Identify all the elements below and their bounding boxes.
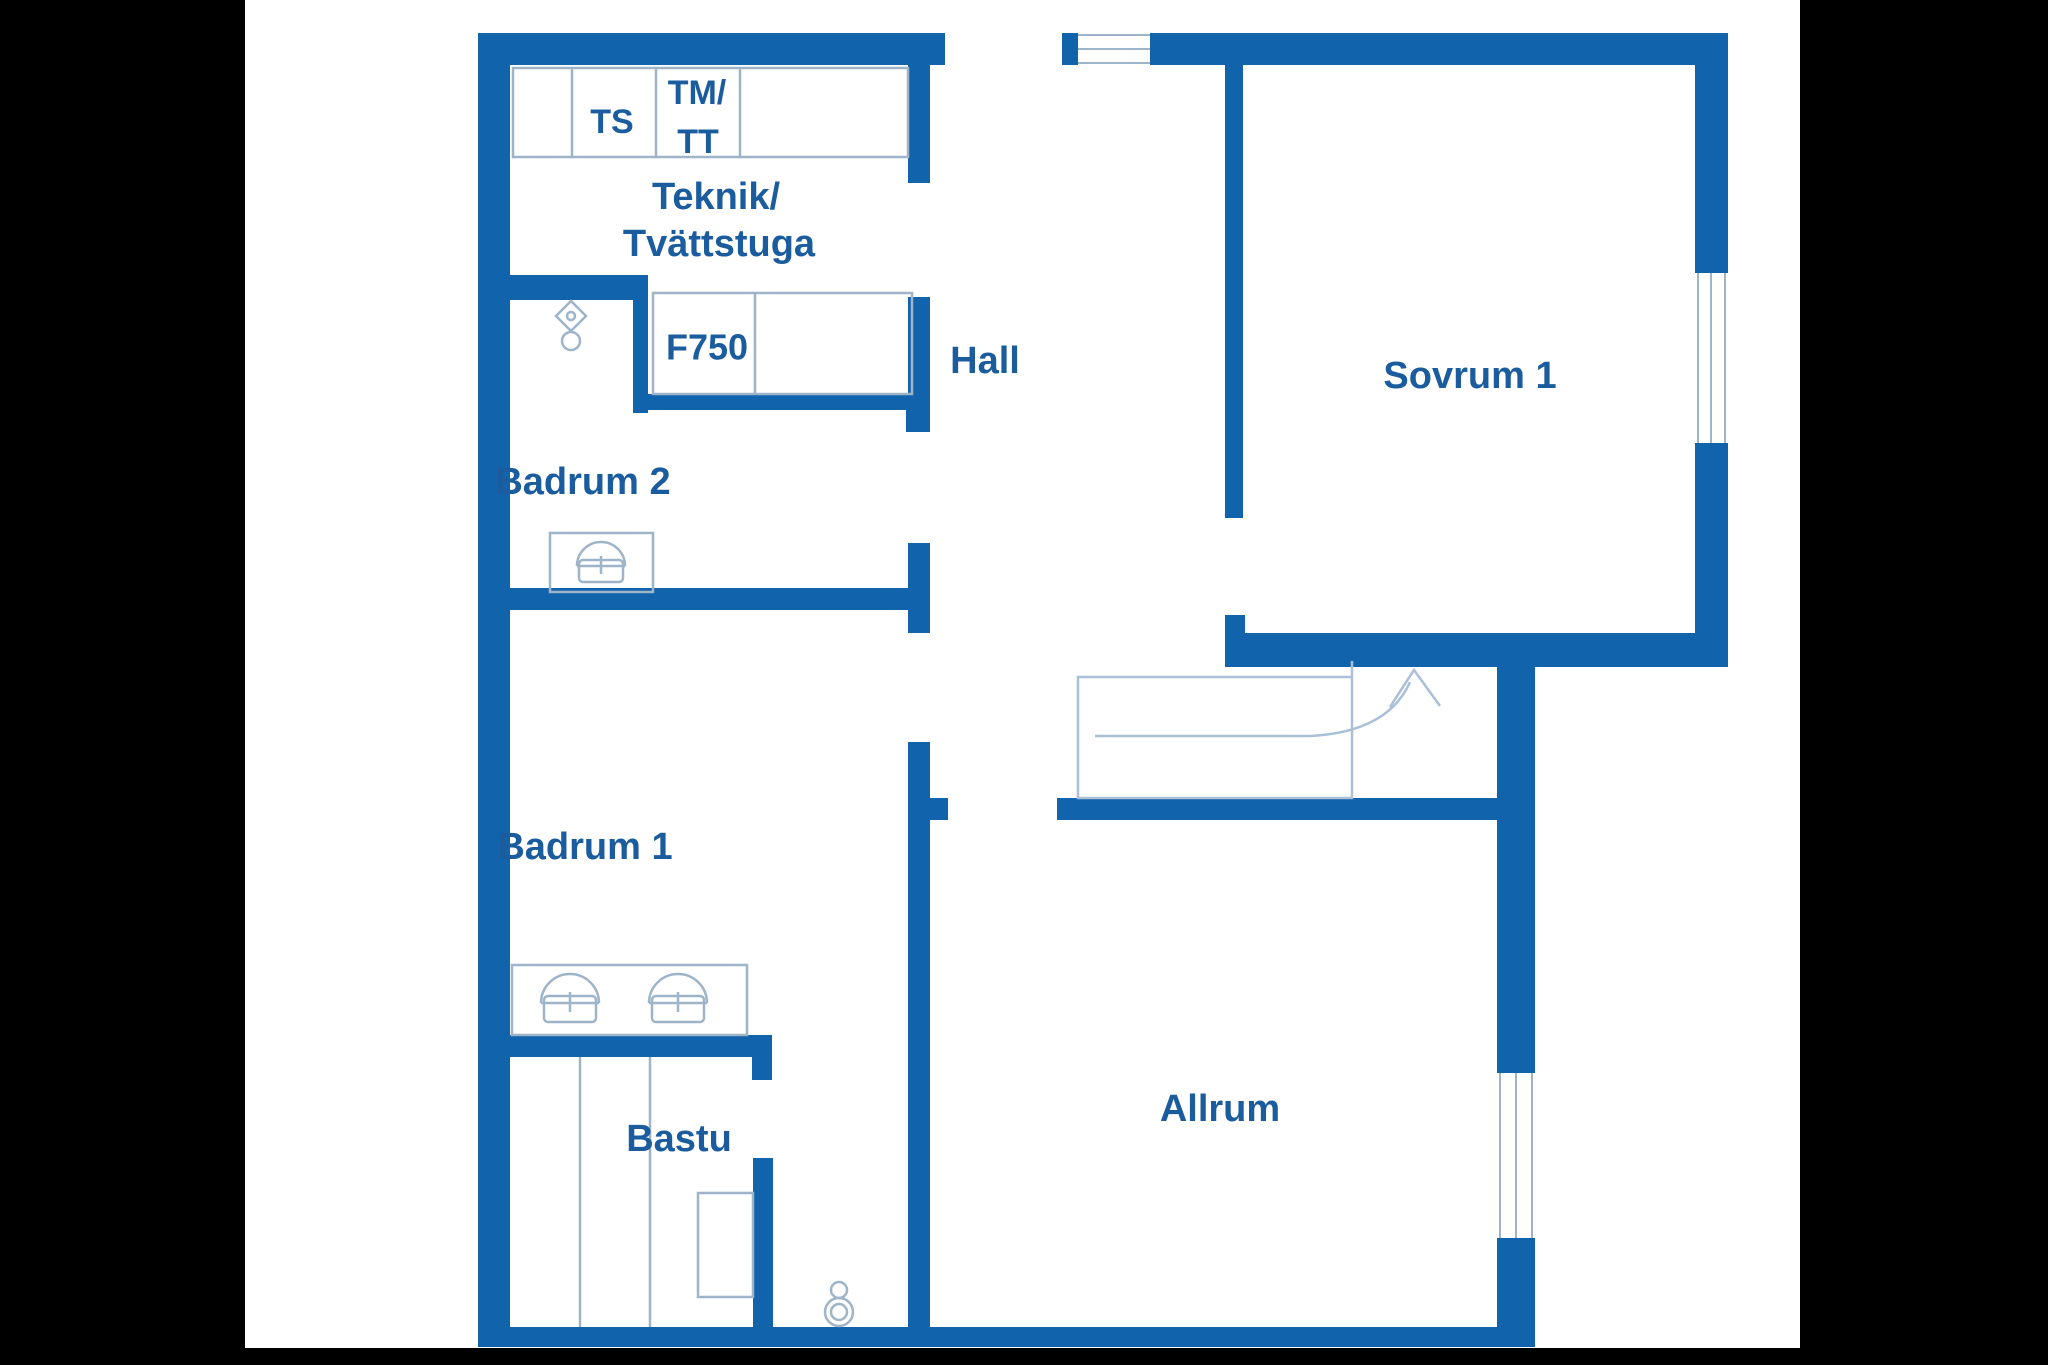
sink-icon <box>577 542 625 582</box>
room-label-bastu: Bastu <box>626 1118 732 1160</box>
cabinet-label-tt: TT <box>677 123 719 161</box>
wall-teknik-badrum2 <box>510 275 648 300</box>
toilet-icon <box>825 1282 853 1326</box>
room-label-badrum2: Badrum 2 <box>495 461 670 503</box>
wall-hall-sovrum-divider <box>1225 65 1243 518</box>
wall-east-upper-a <box>1695 33 1728 273</box>
toilet-icon <box>556 301 586 350</box>
window-allrum-icon <box>1497 1073 1535 1238</box>
counter-badrum1 <box>512 965 747 1035</box>
floor-plan-canvas: TS TM/ TT Teknik/ Tvättstuga F750 Hall S… <box>0 0 2048 1365</box>
letterbox-left <box>0 0 245 1365</box>
stairs-up-arrow-icon <box>1095 682 1410 736</box>
floor-plan-screenshot: TS TM/ TT Teknik/ Tvättstuga F750 Hall S… <box>0 0 2048 1365</box>
cabinet-label-f750: F750 <box>666 327 748 368</box>
fixtures <box>541 301 853 1326</box>
sink-icon <box>541 974 599 1022</box>
wall-south <box>478 1327 1535 1347</box>
room-label-sovrum1: Sovrum 1 <box>1383 355 1556 397</box>
cabinet-label-tm: TM/ <box>668 74 727 112</box>
letterbox-right <box>1800 0 2048 1365</box>
wall-center-2-cap <box>906 410 930 432</box>
sauna-heater-icon <box>698 1193 753 1297</box>
wall-north-right <box>1150 33 1728 65</box>
wall-center-lower <box>908 742 930 1347</box>
room-label-badrum1: Badrum 1 <box>497 826 672 868</box>
wall-allrum-north <box>1057 798 1535 820</box>
room-label-teknik-line2: Tvättstuga <box>623 223 816 265</box>
wall-bastu-east <box>753 1158 773 1347</box>
window-sovrum1-icon <box>1695 273 1728 443</box>
room-label-hall: Hall <box>950 340 1020 382</box>
sink-icon <box>649 974 707 1022</box>
wall-f750-south <box>633 394 930 410</box>
room-label-allrum: Allrum <box>1160 1088 1280 1130</box>
window-top-icon <box>1078 33 1150 65</box>
wall-center-3 <box>908 543 930 633</box>
stairs-outline <box>1078 677 1352 798</box>
wall-east-lower-a <box>1497 667 1535 1073</box>
room-label-teknik-line1: Teknik/ <box>652 176 781 218</box>
wall-sovrum1-south <box>1245 633 1728 667</box>
wall-badrum1-south-cap <box>752 1057 772 1080</box>
wall-badrum1-south <box>478 1035 772 1057</box>
cabinet-label-ts: TS <box>590 103 633 141</box>
staircase <box>1078 661 1440 798</box>
wall-west <box>478 33 510 1347</box>
wall-north-left <box>478 33 945 65</box>
letterbox-bottom <box>245 1348 1800 1365</box>
wall-sovrum1-south-nub <box>1225 615 1245 667</box>
wall-north-post <box>1062 33 1078 65</box>
wall-center-bump <box>930 798 948 820</box>
wall-center-top <box>908 65 930 183</box>
